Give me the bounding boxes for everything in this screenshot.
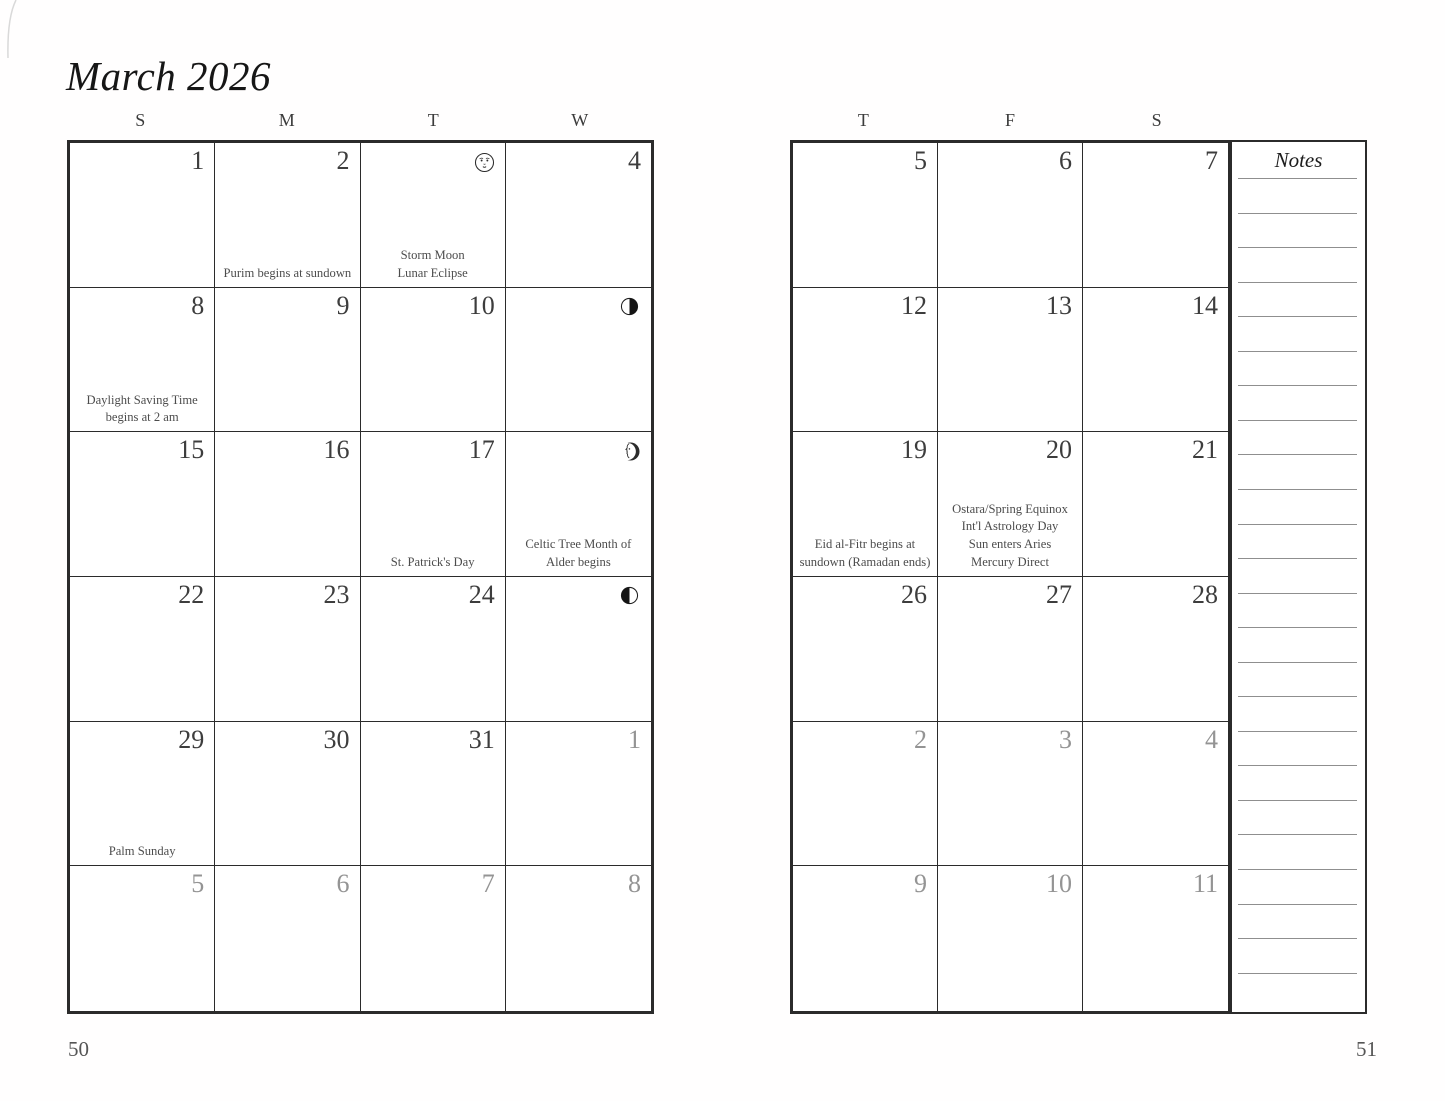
day-number: 21: [1192, 437, 1218, 463]
note-line: [1238, 973, 1357, 974]
day-cell: 11: [1083, 866, 1228, 1011]
note-line: [1238, 385, 1357, 386]
day-number: 24: [469, 582, 495, 608]
day-cell: 20Ostara/Spring EquinoxInt'l Astrology D…: [938, 432, 1083, 577]
day-number: 11: [1193, 871, 1218, 897]
right-day-headers: TFS: [790, 110, 1230, 136]
event-text: Ostara/Spring EquinoxInt'l Astrology Day…: [939, 501, 1081, 573]
note-line: [1238, 489, 1357, 490]
day-number: 1: [191, 148, 204, 174]
month-title: March 2026: [66, 52, 271, 100]
day-cell: 28: [1083, 577, 1228, 722]
day-number: 8: [191, 293, 204, 319]
day-number: 13: [1046, 293, 1072, 319]
day-cell: 6: [938, 143, 1083, 288]
day-cell: 23: [215, 577, 360, 722]
left-day-headers: SMTW: [67, 110, 653, 136]
note-line: [1238, 351, 1357, 352]
day-cell: 29Palm Sunday: [70, 722, 215, 867]
day-cell: 17St. Patrick's Day: [361, 432, 506, 577]
event-text: Palm Sunday: [71, 843, 213, 861]
note-line: [1238, 869, 1357, 870]
day-number: 6: [337, 871, 350, 897]
day-number: 2: [337, 148, 350, 174]
day-cell: 9: [793, 866, 938, 1011]
note-line: [1238, 454, 1357, 455]
day-cell: 1: [70, 143, 215, 288]
day-cell: 4: [506, 143, 651, 288]
day-cell: 22: [70, 577, 215, 722]
day-header: T: [790, 110, 937, 136]
note-line: [1238, 593, 1357, 594]
day-number: 10: [469, 293, 495, 319]
first-quarter-moon-icon: [619, 585, 642, 608]
new-moon-face-icon: [619, 440, 642, 463]
day-cell: 7: [1083, 143, 1228, 288]
day-header: T: [360, 110, 507, 136]
note-line: [1238, 938, 1357, 939]
day-cell: 2: [793, 722, 938, 867]
day-cell: 16: [215, 432, 360, 577]
day-number: 14: [1192, 293, 1218, 319]
day-number: 5: [191, 871, 204, 897]
page-number-right: 51: [1240, 1037, 1377, 1062]
day-number: 2: [914, 727, 927, 753]
page-number-left: 50: [68, 1037, 89, 1062]
page-edge-artifact: [0, 0, 30, 62]
day-cell: 1: [506, 722, 651, 867]
day-cell: 5: [793, 143, 938, 288]
day-cell: 26: [793, 577, 938, 722]
day-cell: 3: [938, 722, 1083, 867]
day-number: 6: [1059, 148, 1072, 174]
day-number: 5: [914, 148, 927, 174]
day-cell: [506, 288, 651, 433]
note-line: [1238, 800, 1357, 801]
day-header: W: [507, 110, 654, 136]
note-line: [1238, 178, 1357, 179]
note-line: [1238, 558, 1357, 559]
day-cell: 10: [938, 866, 1083, 1011]
last-quarter-moon-icon: [619, 296, 642, 319]
day-cell: 30: [215, 722, 360, 867]
note-line: [1238, 662, 1357, 663]
day-number: 30: [324, 727, 350, 753]
day-cell: [506, 577, 651, 722]
day-cell: 27: [938, 577, 1083, 722]
day-cell: Celtic Tree Month ofAlder begins: [506, 432, 651, 577]
day-number: 26: [901, 582, 927, 608]
day-cell: 9: [215, 288, 360, 433]
day-number: 19: [901, 437, 927, 463]
day-number: 4: [628, 148, 641, 174]
planner-spread: March 2026 SMTW 12Purim begins at sundow…: [0, 0, 1445, 1101]
note-line: [1238, 213, 1357, 214]
day-cell: 12: [793, 288, 938, 433]
day-header: M: [214, 110, 361, 136]
day-number: 22: [178, 582, 204, 608]
day-number: 20: [1046, 437, 1072, 463]
day-number: 15: [178, 437, 204, 463]
day-cell: 2Purim begins at sundown: [215, 143, 360, 288]
right-calendar-grid: 56712131419Eid al-Fitr begins atsundown …: [790, 140, 1231, 1014]
day-number: 31: [469, 727, 495, 753]
note-line: [1238, 316, 1357, 317]
event-text: Storm MoonLunar Eclipse: [362, 247, 504, 283]
note-line: [1238, 282, 1357, 283]
day-cell: Storm MoonLunar Eclipse: [361, 143, 506, 288]
note-line: [1238, 765, 1357, 766]
day-cell: 13: [938, 288, 1083, 433]
event-text: Daylight Saving Timebegins at 2 am: [71, 392, 213, 428]
day-number: 16: [324, 437, 350, 463]
left-calendar-grid: 12Purim begins at sundownStorm MoonLunar…: [67, 140, 654, 1014]
day-number: 7: [1205, 148, 1218, 174]
day-number: 1: [628, 727, 641, 753]
day-number: 28: [1192, 582, 1218, 608]
event-text: Purim begins at sundown: [216, 265, 358, 283]
notes-panel: Notes: [1230, 140, 1367, 1014]
event-text: Celtic Tree Month ofAlder begins: [507, 536, 650, 572]
note-line: [1238, 247, 1357, 248]
day-number: 9: [914, 871, 927, 897]
note-line: [1238, 904, 1357, 905]
day-number: 8: [628, 871, 641, 897]
note-line: [1238, 696, 1357, 697]
day-cell: 14: [1083, 288, 1228, 433]
day-number: 3: [1059, 727, 1072, 753]
day-number: 4: [1205, 727, 1218, 753]
day-cell: 5: [70, 866, 215, 1011]
day-cell: 4: [1083, 722, 1228, 867]
note-line: [1238, 627, 1357, 628]
day-header: F: [937, 110, 1084, 136]
event-text: St. Patrick's Day: [362, 554, 504, 572]
day-cell: 31: [361, 722, 506, 867]
day-header: S: [67, 110, 214, 136]
day-cell: 21: [1083, 432, 1228, 577]
day-cell: 8Daylight Saving Timebegins at 2 am: [70, 288, 215, 433]
note-line: [1238, 834, 1357, 835]
full-moon-face-icon: [473, 151, 496, 174]
day-cell: 10: [361, 288, 506, 433]
note-line: [1238, 524, 1357, 525]
day-cell: 8: [506, 866, 651, 1011]
event-text: Eid al-Fitr begins atsundown (Ramadan en…: [794, 536, 936, 572]
day-cell: 15: [70, 432, 215, 577]
day-cell: 7: [361, 866, 506, 1011]
notes-label: Notes: [1232, 148, 1365, 173]
day-number: 10: [1046, 871, 1072, 897]
day-number: 23: [324, 582, 350, 608]
day-cell: 24: [361, 577, 506, 722]
day-number: 9: [337, 293, 350, 319]
day-cell: 6: [215, 866, 360, 1011]
day-number: 27: [1046, 582, 1072, 608]
day-cell: 19Eid al-Fitr begins atsundown (Ramadan …: [793, 432, 938, 577]
day-number: 12: [901, 293, 927, 319]
note-line: [1238, 731, 1357, 732]
day-number: 7: [482, 871, 495, 897]
day-header: S: [1083, 110, 1230, 136]
day-number: 29: [178, 727, 204, 753]
note-line: [1238, 420, 1357, 421]
day-number: 17: [469, 437, 495, 463]
